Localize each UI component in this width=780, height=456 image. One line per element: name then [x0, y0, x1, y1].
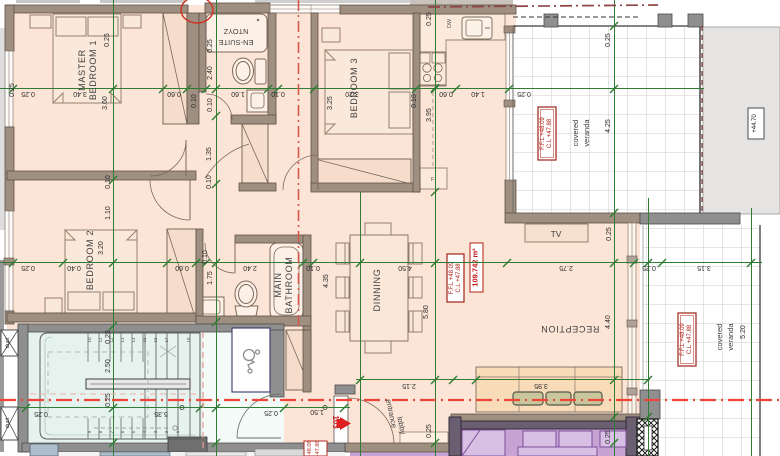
svg-text:covered: covered: [715, 324, 724, 351]
svg-text:3.20: 3.20: [345, 90, 359, 97]
svg-text:17: 17: [164, 337, 169, 343]
svg-text:F.F.L +48.09: F.F.L +48.09: [449, 261, 455, 294]
svg-text:1.50: 1.50: [310, 408, 324, 415]
svg-text:0.25: 0.25: [21, 264, 35, 271]
svg-text:0.25: 0.25: [426, 424, 433, 438]
svg-text:2.15: 2.15: [402, 382, 416, 389]
svg-text:0.25: 0.25: [9, 83, 16, 97]
svg-text:+48.08: +48.08: [307, 441, 313, 456]
svg-text:MAIN: MAIN: [273, 272, 283, 297]
svg-text:C.L +47.88: C.L +47.88: [456, 263, 462, 293]
svg-text:18: 18: [186, 337, 191, 343]
svg-text:0.60: 0.60: [439, 90, 453, 97]
svg-text:0.25: 0.25: [605, 430, 612, 444]
svg-text:3.25: 3.25: [327, 96, 334, 110]
svg-text:0.10: 0.10: [191, 94, 198, 108]
svg-text:0.25: 0.25: [105, 330, 112, 344]
svg-text:3.60: 3.60: [102, 96, 109, 110]
svg-text:1.35: 1.35: [206, 147, 213, 161]
svg-text:1.40: 1.40: [471, 90, 485, 97]
svg-text:2.50: 2.50: [105, 359, 112, 373]
svg-text:ΝΤΟΥΖ: ΝΤΟΥΖ: [223, 27, 248, 36]
svg-text:BATHROOM: BATHROOM: [284, 257, 294, 314]
svg-text:1.75: 1.75: [207, 271, 214, 285]
svg-text:4.40: 4.40: [605, 315, 612, 329]
svg-text:DW: DW: [447, 18, 453, 28]
svg-text:BEDROOM 3: BEDROOM 3: [349, 58, 359, 118]
svg-text:+44.70: +44.70: [752, 114, 758, 133]
svg-text:2.75: 2.75: [559, 264, 573, 271]
svg-text:3.20: 3.20: [98, 241, 105, 255]
svg-text:duct: duct: [5, 337, 11, 348]
svg-text:BEDROOM 2: BEDROOM 2: [85, 230, 95, 290]
svg-text:3.15: 3.15: [697, 264, 711, 271]
svg-text:EN-SUITE: EN-SUITE: [218, 38, 253, 47]
svg-text:11: 11: [98, 337, 103, 342]
svg-text:MASTER: MASTER: [77, 49, 87, 91]
svg-text:0.25: 0.25: [517, 90, 531, 97]
svg-text:0.25: 0.25: [104, 33, 111, 47]
svg-text:109.742 m²: 109.742 m²: [471, 248, 480, 287]
svg-text:0.25: 0.25: [34, 410, 48, 417]
svg-text:0.60: 0.60: [167, 90, 181, 97]
svg-text:3.40: 3.40: [73, 90, 87, 97]
svg-text:BEDROOM 1: BEDROOM 1: [88, 40, 98, 100]
svg-text:0.25: 0.25: [642, 264, 656, 271]
svg-text:duct: duct: [5, 417, 11, 428]
svg-text:TV: TV: [551, 229, 562, 239]
svg-text:+47.88: +47.88: [315, 441, 321, 456]
svg-text:0.25: 0.25: [207, 39, 214, 53]
svg-text:veranda: veranda: [726, 323, 735, 351]
svg-text:10: 10: [87, 337, 92, 343]
svg-text:0.25: 0.25: [606, 227, 613, 241]
svg-text:0.10: 0.10: [411, 94, 418, 108]
svg-text:0.10: 0.10: [271, 90, 285, 97]
svg-text:F.F.L +48.09: F.F.L +48.09: [680, 323, 686, 356]
svg-text:14: 14: [131, 337, 136, 343]
svg-text:3.95: 3.95: [426, 108, 433, 122]
svg-text:0.10: 0.10: [202, 250, 209, 264]
svg-text:15: 15: [142, 337, 147, 343]
svg-text:1.10: 1.10: [105, 206, 112, 220]
svg-text:13: 13: [120, 337, 125, 343]
svg-text:1.60: 1.60: [231, 90, 245, 97]
svg-text:2.40: 2.40: [243, 264, 257, 271]
svg-text:4.50: 4.50: [398, 264, 412, 271]
svg-text:RECEPTION: RECEPTION: [541, 324, 600, 334]
svg-text:0.10: 0.10: [105, 175, 112, 189]
svg-text:0.25: 0.25: [105, 393, 112, 407]
svg-text:0.25: 0.25: [264, 409, 278, 416]
svg-text:covered: covered: [571, 120, 580, 147]
svg-text:4.35: 4.35: [323, 274, 330, 288]
svg-text:0.60: 0.60: [175, 264, 189, 271]
svg-text:0.10: 0.10: [306, 264, 320, 271]
svg-text:C.L +47.88: C.L +47.88: [547, 118, 553, 148]
svg-text:0.10: 0.10: [206, 175, 213, 189]
svg-text:0.25: 0.25: [21, 90, 35, 97]
svg-text:0.25: 0.25: [605, 33, 612, 47]
svg-text:0.25: 0.25: [426, 12, 433, 26]
svg-text:5.35: 5.35: [154, 410, 168, 417]
svg-text:C.L +47.88: C.L +47.88: [687, 324, 693, 354]
svg-text:16: 16: [153, 337, 158, 343]
svg-text:5.80: 5.80: [423, 305, 430, 319]
svg-text:0.40: 0.40: [67, 264, 81, 271]
svg-text:veranda: veranda: [582, 119, 591, 147]
svg-text:0.10: 0.10: [207, 98, 214, 112]
svg-text:5.20: 5.20: [740, 325, 747, 339]
svg-text:4.25: 4.25: [605, 119, 612, 133]
svg-text:DINNING: DINNING: [372, 269, 382, 312]
svg-text:F.F.L +48.09: F.F.L +48.09: [540, 117, 546, 150]
svg-text:3.95: 3.95: [534, 382, 548, 389]
svg-text:2.40: 2.40: [207, 66, 214, 80]
